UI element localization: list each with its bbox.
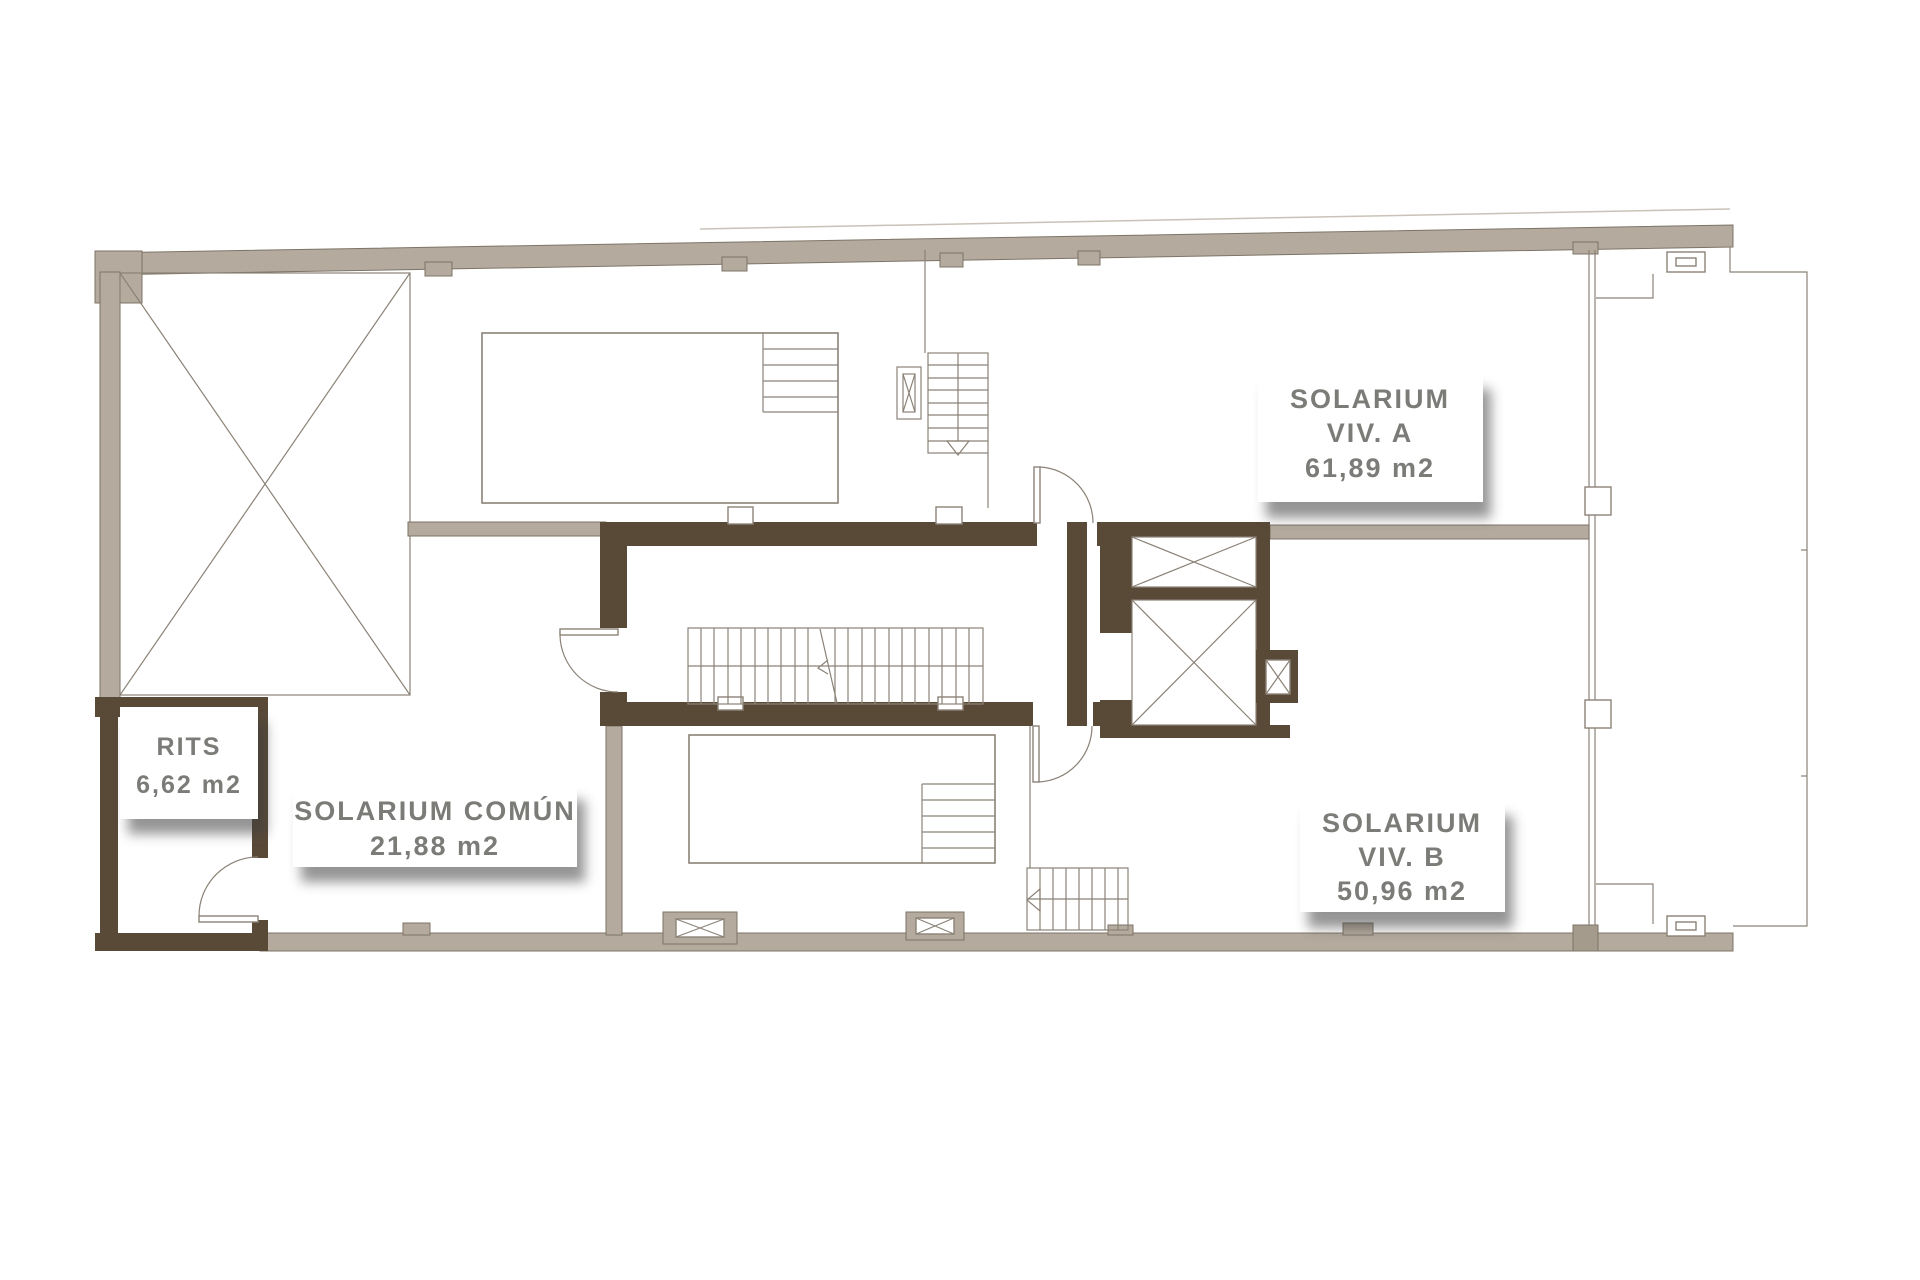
skylight (120, 273, 410, 695)
stair-core (600, 507, 1100, 726)
south-wall-pillar (1573, 925, 1598, 951)
door-swing-icon (199, 857, 258, 916)
east-terrace (1585, 247, 1807, 936)
label-area: 21,88 m2 (370, 831, 500, 861)
elevator-south-wall (1100, 725, 1290, 738)
roof-vent-bottom (1667, 916, 1705, 936)
door-solarium-a (1034, 467, 1093, 523)
label-box (120, 707, 258, 819)
parapet-west (408, 522, 606, 536)
stair-run-icon (1027, 868, 1128, 930)
elevator-west-wall (1100, 522, 1132, 633)
door-leaf (199, 916, 258, 922)
elevator-shaft-large (1132, 600, 1256, 725)
door-solarium-b (1033, 726, 1092, 782)
roof-vent-inner (1676, 922, 1696, 930)
roof-vent-inner (1676, 258, 1696, 266)
pool-steps-icon (922, 784, 995, 863)
label-title: RITS (157, 733, 222, 761)
pool-north (482, 333, 838, 503)
door-leaf (560, 629, 618, 635)
roof-edge-line (700, 209, 1730, 229)
label-subtitle: VIV. A (1327, 418, 1414, 448)
door-leaf (1033, 726, 1039, 782)
label-area: 50,96 m2 (1337, 876, 1467, 906)
north-wall-tab (1573, 242, 1598, 254)
elevator-shaft-cross-icon (1132, 537, 1256, 587)
terrace-edge-line (1730, 247, 1807, 926)
rits-south-wall (95, 933, 268, 951)
door-swing-icon (1040, 467, 1093, 523)
label-title: SOLARIUM (1322, 808, 1482, 838)
core-north-wall (600, 522, 1037, 546)
north-wall-tab (1078, 251, 1100, 265)
core-west-wall (600, 522, 627, 628)
label-title: SOLARIUM (1290, 384, 1450, 414)
vent-box (936, 507, 962, 524)
vent-box-east (906, 912, 964, 940)
core-north-wall (1097, 522, 1100, 546)
elevator-block (1100, 522, 1298, 738)
terrace-edge-joggle (1801, 550, 1807, 776)
door-swing-icon (560, 635, 618, 692)
floor-plan-page: SOLARIUM VIV. A 61,89 m2 RITS 6,62 m2 SO… (0, 0, 1920, 1280)
stair-run-icon (688, 628, 983, 704)
rits-east-wall (252, 920, 268, 951)
elevator-side-vent (1256, 650, 1298, 703)
door-swing-icon (1039, 726, 1092, 782)
shaft-vent (897, 367, 921, 419)
main-staircase (688, 628, 983, 704)
door-comun (560, 629, 618, 692)
core-south-wall (600, 702, 1033, 726)
north-wall-tab (722, 257, 747, 271)
label-subtitle: VIV. B (1358, 842, 1446, 872)
core-south-wall (1093, 702, 1100, 726)
core-west-wall (600, 692, 627, 726)
label-solarium-comun: SOLARIUM COMÚN 21,88 m2 (293, 785, 585, 882)
south-staircase (1027, 726, 1128, 930)
comun-divider-wall (606, 726, 622, 935)
south-wall (260, 933, 1733, 951)
terrace-recess-top (1596, 274, 1653, 298)
floor-plan-drawing: SOLARIUM VIV. A 61,89 m2 RITS 6,62 m2 SO… (0, 0, 1920, 1280)
label-area: 61,89 m2 (1305, 453, 1435, 483)
vent-box (728, 507, 753, 524)
door-rits (199, 857, 258, 922)
terrace-divider-wall (1589, 250, 1595, 925)
vent-cross-icon (903, 374, 915, 412)
north-wall-tab (425, 262, 452, 276)
north-wall (95, 225, 1733, 275)
west-wall (100, 272, 120, 700)
vent-box-west (663, 912, 737, 944)
stair-direction-arrow (1027, 889, 1040, 911)
core-east-wall (1067, 522, 1087, 726)
pool-outline (482, 333, 838, 503)
wall-fixture-box (1585, 487, 1611, 515)
label-area: 6,62 m2 (136, 771, 242, 799)
pool-outline (689, 735, 995, 863)
north-wall-tab (940, 253, 963, 267)
parapet-east (1270, 525, 1589, 539)
label-title: SOLARIUM COMÚN (294, 795, 575, 826)
pool-steps-icon (763, 333, 838, 412)
door-leaf (1034, 467, 1040, 523)
label-solarium-b: SOLARIUM VIV. B 50,96 m2 (1300, 800, 1513, 928)
elevator-shaft-cross-icon (1132, 600, 1256, 725)
label-solarium-a: SOLARIUM VIV. A 61,89 m2 (1258, 373, 1491, 518)
elevator-shaft-small (1132, 537, 1256, 587)
pool-south (689, 735, 995, 863)
room-labels: SOLARIUM VIV. A 61,89 m2 RITS 6,62 m2 SO… (120, 373, 1513, 928)
wall-fixture-box (1585, 700, 1611, 728)
roof-vent-top (1667, 252, 1705, 272)
skylight-cross-icon (120, 273, 410, 695)
south-wall-bump (403, 923, 430, 935)
elevator-mid-wall (1132, 587, 1256, 600)
label-rits: RITS 6,62 m2 (120, 707, 266, 834)
north-staircase (897, 250, 988, 508)
terrace-recess-bottom (1596, 884, 1653, 924)
stair-run-icon (928, 353, 988, 441)
rits-west-wall (100, 717, 118, 933)
elevator-east-wall (1256, 522, 1270, 738)
